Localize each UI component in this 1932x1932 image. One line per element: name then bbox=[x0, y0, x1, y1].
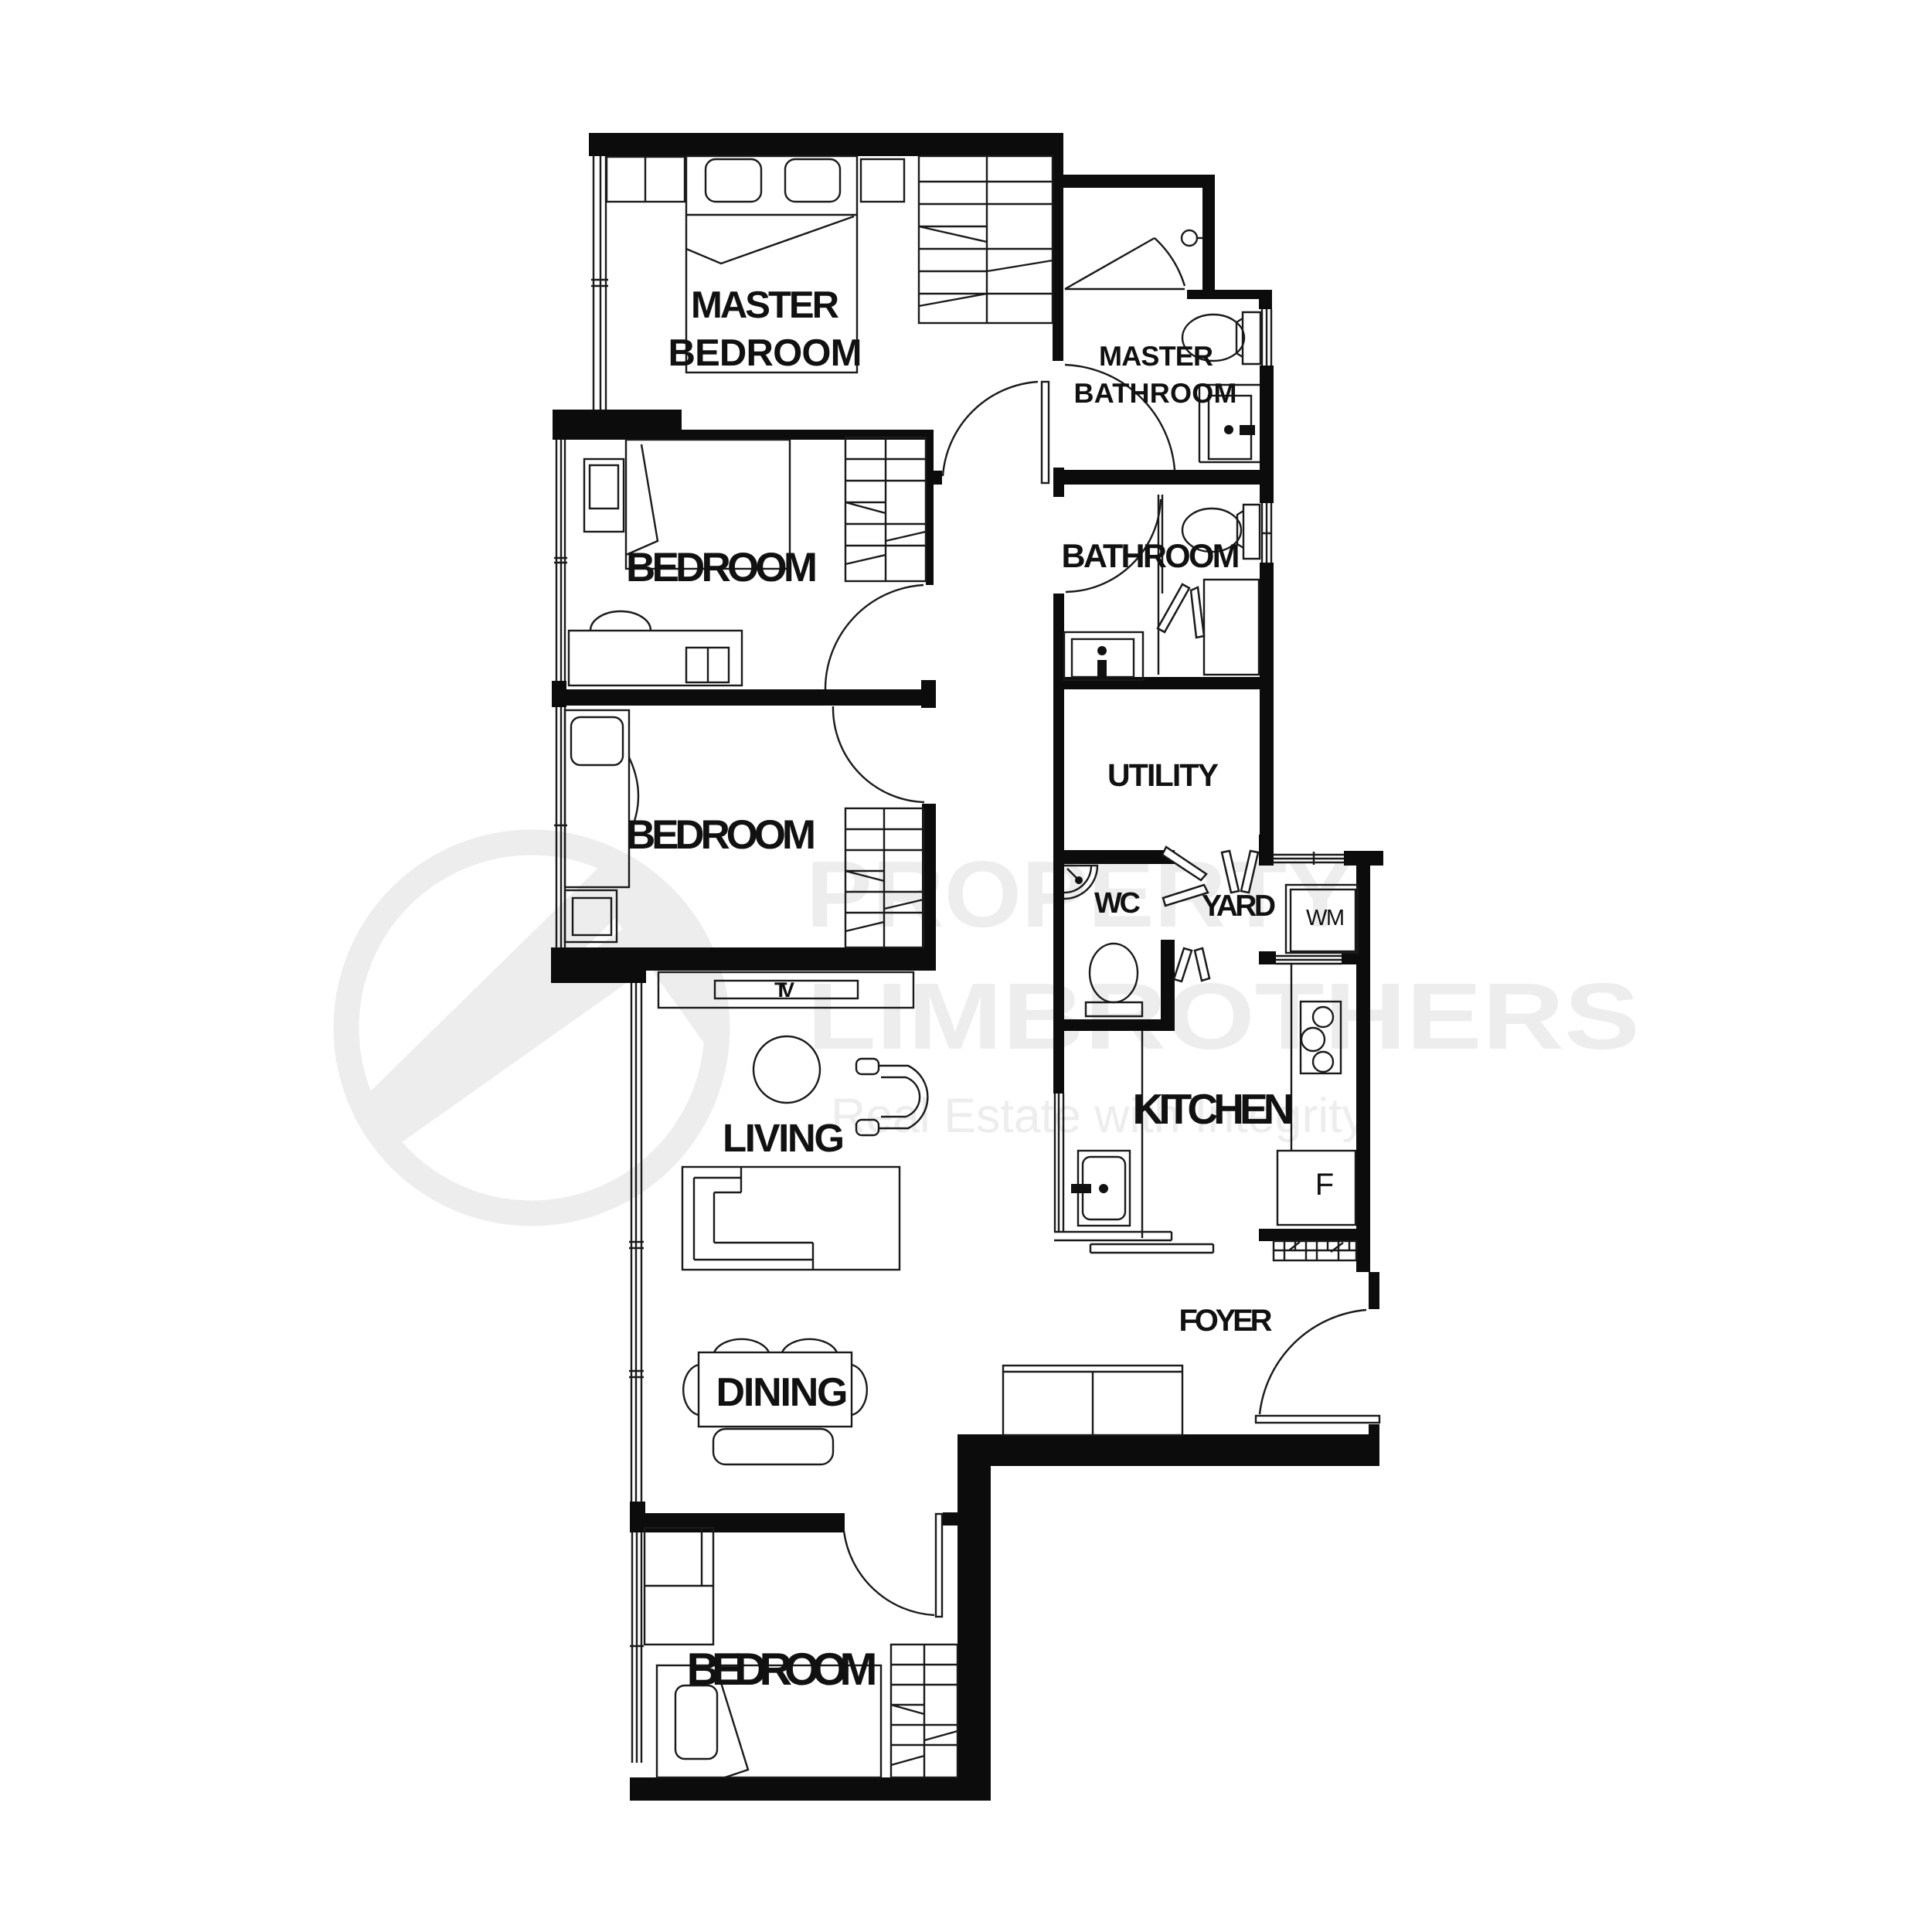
svg-text:FOYER: FOYER bbox=[1179, 1304, 1274, 1338]
svg-text:BEDROOM: BEDROOM bbox=[668, 332, 864, 374]
svg-text:BEDROOM: BEDROOM bbox=[626, 812, 818, 858]
svg-text:TV: TV bbox=[774, 978, 796, 1002]
svg-text:BEDROOM: BEDROOM bbox=[626, 545, 819, 590]
svg-text:WC: WC bbox=[1094, 887, 1142, 920]
svg-text:BEDROOM: BEDROOM bbox=[687, 1644, 879, 1695]
svg-text:KITCHEN: KITCHEN bbox=[1133, 1085, 1296, 1133]
svg-text:UTILITY: UTILITY bbox=[1107, 757, 1220, 793]
svg-text:LIMBROTHERS: LIMBROTHERS bbox=[807, 964, 1640, 1069]
svg-text:LIVING: LIVING bbox=[723, 1116, 846, 1160]
svg-text:DINING: DINING bbox=[716, 1370, 850, 1415]
svg-text:F: F bbox=[1315, 1168, 1334, 1202]
svg-text:WM: WM bbox=[1306, 906, 1345, 930]
svg-text:MASTER: MASTER bbox=[691, 284, 841, 326]
svg-text:BATHROOM: BATHROOM bbox=[1062, 538, 1242, 575]
svg-text:YARD: YARD bbox=[1202, 889, 1277, 923]
svg-text:MASTER: MASTER bbox=[1099, 340, 1215, 372]
svg-text:BATHROOM: BATHROOM bbox=[1074, 377, 1239, 409]
